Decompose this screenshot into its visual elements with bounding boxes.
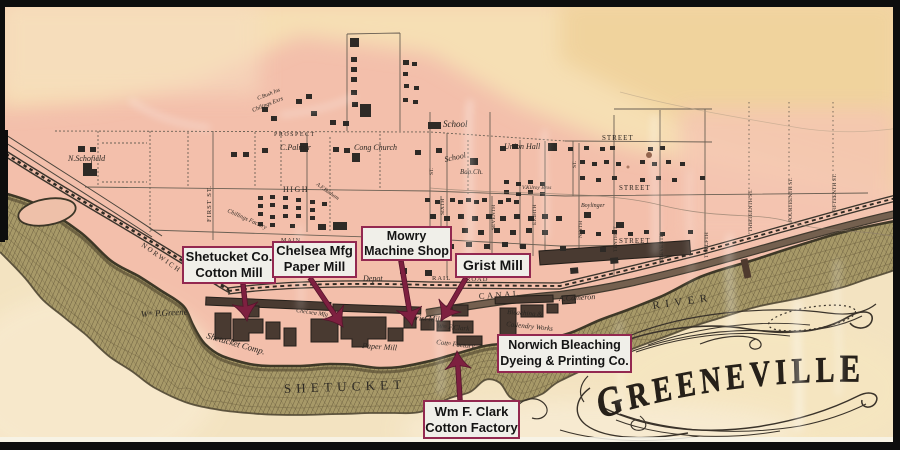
svg-text:ST.: ST. xyxy=(572,160,578,168)
svg-text:HIGH: HIGH xyxy=(283,185,309,194)
svg-text:FIRST ST.: FIRST ST. xyxy=(206,185,213,222)
svg-text:Union Hall: Union Hall xyxy=(504,142,541,151)
svg-text:THIRTEENTH ST.: THIRTEENTH ST. xyxy=(748,189,754,232)
svg-text:NINTH: NINTH xyxy=(578,221,584,238)
svg-text:TWELFTH: TWELFTH xyxy=(704,232,710,258)
svg-text:SEVENTH: SEVENTH xyxy=(491,205,497,230)
svg-text:C.Palmer: C.Palmer xyxy=(280,143,312,152)
svg-text:Cong Church: Cong Church xyxy=(354,143,397,152)
svg-text:RAIL: RAIL xyxy=(432,275,451,282)
svg-text:ELEVENTH: ELEVENTH xyxy=(659,233,665,262)
svg-text:Depot: Depot xyxy=(362,274,383,283)
svg-text:SIXTH: SIXTH xyxy=(440,199,446,215)
svg-text:EIGHTH: EIGHTH xyxy=(532,205,538,225)
svg-text:PROSPECT: PROSPECT xyxy=(274,132,316,138)
svg-text:Boylinger: Boylinger xyxy=(581,203,605,209)
svg-text:ST.: ST. xyxy=(429,167,435,175)
svg-text:TENTH ST.: TENTH ST. xyxy=(613,225,619,252)
svg-text:School: School xyxy=(443,119,468,129)
svg-text:N.Schofield: N.Schofield xyxy=(67,154,106,163)
svg-text:STREET: STREET xyxy=(602,134,634,142)
svg-text:STREET: STREET xyxy=(619,237,651,245)
svg-text:STREET: STREET xyxy=(619,184,651,192)
svg-text:FOURTEENTH ST.: FOURTEENTH ST. xyxy=(788,177,794,222)
svg-text:FIFTEENTH ST.: FIFTEENTH ST. xyxy=(832,173,838,212)
